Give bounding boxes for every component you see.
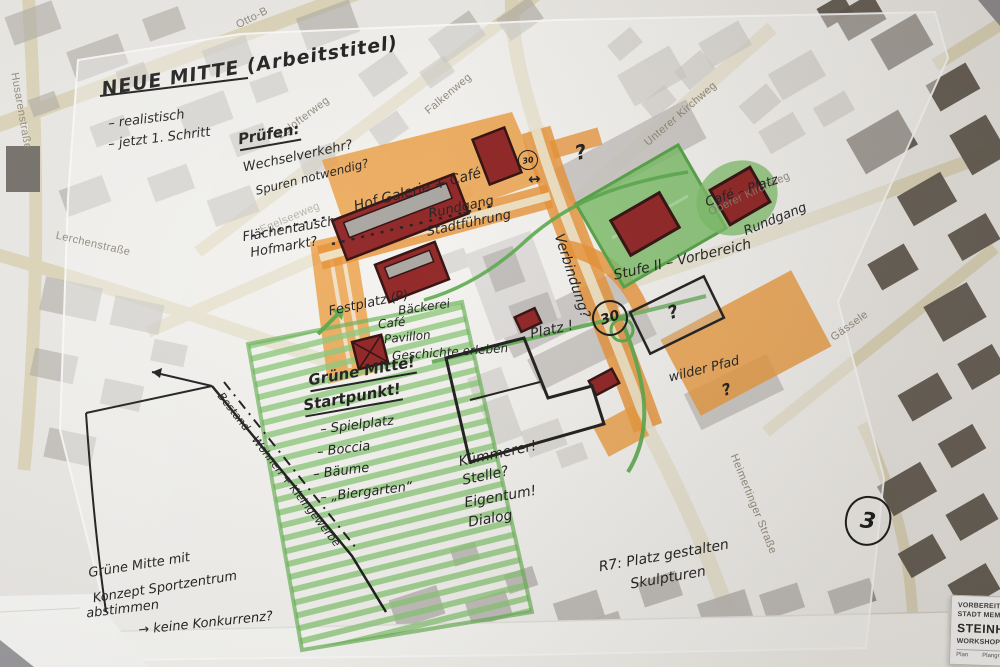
- annotated-plan-photo: Husarenstraße Otto-B Falkenweg Eglofterw…: [0, 0, 1000, 667]
- double-arrow: ↔: [527, 169, 541, 188]
- title-block-plangrundlage-label: Plangr: [982, 653, 1000, 660]
- building-left-edge: [6, 146, 40, 192]
- title-block-plan-label: Plan: [956, 652, 968, 658]
- note-cafe-a: Café: [377, 315, 406, 332]
- plan-title-block: VORBEREITEN STADT MEMMIN STEINHEIM WORKS…: [949, 595, 1000, 667]
- title-block-line4: WORKSHOP OR: [956, 637, 1000, 650]
